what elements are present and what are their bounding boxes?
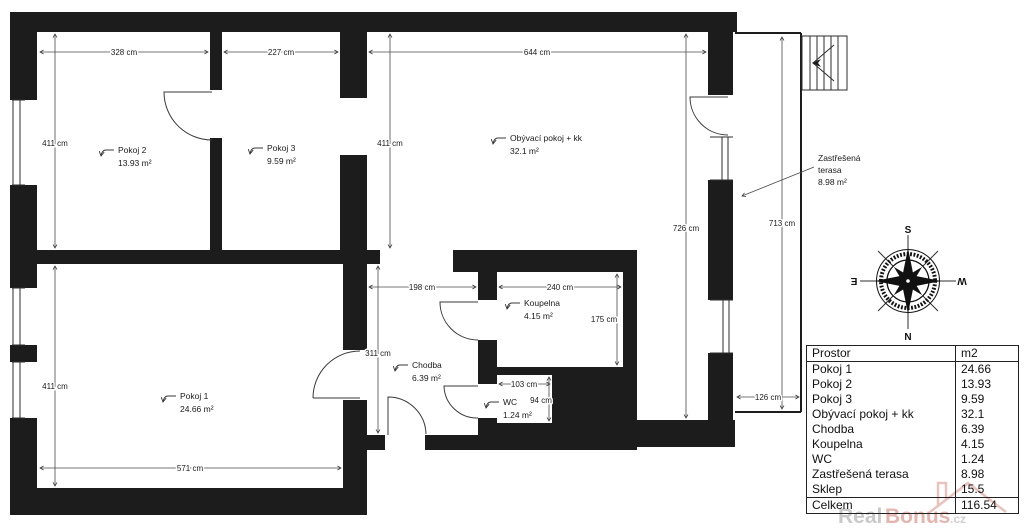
room-label-chodba: Chodba 6.39 m² xyxy=(395,360,442,383)
room-label-wc-text: 1.24 m² xyxy=(503,410,532,420)
room-label-koupelna: Koupelna 4.15 m² xyxy=(507,298,560,321)
window-left-pokoj1-b xyxy=(12,362,25,418)
walls-rect xyxy=(343,264,367,350)
walls-rect xyxy=(708,32,733,95)
walls-rect xyxy=(478,418,497,435)
window-living-terrace-b xyxy=(710,300,733,353)
compass-rose-icon: S N E W xyxy=(850,225,966,343)
dim-pokoj2-width: 328 cm xyxy=(40,48,208,57)
room-label-koupelna-path xyxy=(507,303,520,309)
table-row-td: Zastřešená terasa xyxy=(807,467,956,482)
door-pokoj2-path xyxy=(164,92,212,140)
door-living-terrace-path xyxy=(690,97,728,135)
dim-koupelna-height-text: 175 cm xyxy=(591,315,618,324)
dim-mid-height: 411 cm xyxy=(377,34,403,248)
area-table-header: Prostor m2 xyxy=(807,346,1019,362)
window-living-terrace xyxy=(710,137,733,180)
table-row-td: 32.1 xyxy=(956,407,1019,422)
walls-rect xyxy=(210,32,222,90)
table-total-label: Celkem xyxy=(807,498,956,514)
dim-mid-height-text: 411 cm xyxy=(377,139,403,148)
room-label-terasa-line xyxy=(742,167,814,196)
door-pokoj2 xyxy=(164,92,212,140)
room-label-pokoj2-text: Pokoj 2 xyxy=(118,145,147,155)
room-label-pokoj2: Pokoj 2 13.93 m² xyxy=(101,145,152,168)
dim-pokoj2-height: 411 cm xyxy=(42,34,68,248)
room-label-wc: WC 1.24 m² xyxy=(486,397,532,420)
dim-pokoj1-height-text: 411 cm xyxy=(42,382,68,391)
dim-pokoj1-width: 571 cm xyxy=(40,464,341,473)
door-entry-path xyxy=(388,397,426,435)
table-row: Pokoj 124.66 xyxy=(807,362,1019,378)
dim-living-width: 644 cm xyxy=(369,48,706,57)
dim-chodba-width-text: 198 cm xyxy=(409,283,436,292)
dim-pokoj1-width-text: 571 cm xyxy=(177,464,204,473)
walls-rect xyxy=(478,340,497,384)
dim-koupelna-height: 175 cm xyxy=(591,274,618,365)
table-row-td: 15.5 xyxy=(956,482,1019,498)
room-label-pokoj1-text: 24.66 m² xyxy=(180,404,214,414)
table-row-td: 1.24 xyxy=(956,452,1019,467)
dim-pokoj3-width: 227 cm xyxy=(224,48,338,57)
door-pokoj1 xyxy=(313,351,360,398)
dim-chodba-height: 311 cm xyxy=(365,266,391,433)
table-row-td: Pokoj 2 xyxy=(807,377,956,392)
table-row: Koupelna4.15 xyxy=(807,437,1019,452)
walls-rect xyxy=(478,272,497,300)
walls-rect xyxy=(10,250,380,264)
compass-left-label: E xyxy=(850,275,857,286)
table-total-row: Celkem 116.54 xyxy=(807,498,1019,514)
table-row: Chodba6.39 xyxy=(807,422,1019,437)
walls-rect xyxy=(10,185,37,288)
dim-pokoj2-width-text: 328 cm xyxy=(111,48,138,57)
door-wc-path xyxy=(444,386,478,418)
dim-living-height: 726 cm xyxy=(673,34,700,418)
dim-living-width-text: 644 cm xyxy=(524,48,551,57)
dim-living-height-text: 726 cm xyxy=(673,224,700,233)
table-row-td: 6.39 xyxy=(956,422,1019,437)
walls xyxy=(10,12,737,515)
room-label-pokoj3-text: 9.59 m² xyxy=(267,156,296,166)
walls-rect xyxy=(10,488,367,515)
area-table-table: Prostor m2 Pokoj 124.66 Pokoj 213.93 Pok… xyxy=(806,345,1019,514)
room-label-living: Obývací pokoj + kk 32.1 m² xyxy=(493,133,583,156)
table-row-td: Obývací pokoj + kk xyxy=(807,407,956,422)
table-total-value: 116.54 xyxy=(956,498,1019,514)
area-table-header-name: Prostor xyxy=(807,346,956,362)
table-row-td: Pokoj 1 xyxy=(807,362,956,378)
dim-pokoj3-width-text: 227 cm xyxy=(268,48,295,57)
room-label-pokoj2-text: 13.93 m² xyxy=(118,158,152,168)
room-label-chodba-text: Chodba xyxy=(412,360,442,370)
table-row: WC1.24 xyxy=(807,452,1019,467)
door-koupelna-path xyxy=(440,302,478,340)
room-label-terasa-text: 8.98 m² xyxy=(818,177,847,187)
door-living-terrace xyxy=(690,97,728,135)
stairs xyxy=(802,36,847,90)
table-row-td: 13.93 xyxy=(956,377,1019,392)
table-row: Zastřešená terasa8.98 xyxy=(807,467,1019,482)
area-table-header-unit: m2 xyxy=(956,346,1019,362)
dim-terasa-width-text: 126 cm xyxy=(755,393,782,402)
room-label-koupelna-text: Koupelna xyxy=(524,298,560,308)
table-row-td: Sklep xyxy=(807,482,956,498)
dim-terasa-height-text: 713 cm xyxy=(769,219,796,228)
compass-bottom-label: N xyxy=(904,332,911,343)
dim-wc-width: 103 cm xyxy=(499,380,550,389)
table-row: Pokoj 39.59 xyxy=(807,392,1019,407)
table-row-td: WC xyxy=(807,452,956,467)
dim-terasa-width: 126 cm xyxy=(737,393,799,402)
dim-wc-height-text: 94 cm xyxy=(530,396,552,405)
table-row-td: 4.15 xyxy=(956,437,1019,452)
room-label-living-path xyxy=(493,138,506,144)
room-label-pokoj3-text: Pokoj 3 xyxy=(267,143,296,153)
room-label-chodba-path xyxy=(395,365,408,371)
room-label-wc-text: WC xyxy=(503,397,517,407)
walls-rect xyxy=(367,435,385,450)
walls-rect xyxy=(343,400,367,515)
dim-chodba-width: 198 cm xyxy=(369,283,476,292)
door-entry xyxy=(388,397,426,435)
dim-pokoj1-height: 411 cm xyxy=(42,266,68,486)
watermark-cz: .cz xyxy=(950,512,966,526)
walls-rect xyxy=(453,250,637,272)
walls-rect xyxy=(10,12,37,100)
table-row-td: Chodba xyxy=(807,422,956,437)
walls-rect xyxy=(708,353,733,447)
window-left-pokoj2 xyxy=(12,100,25,185)
door-koupelna xyxy=(440,302,478,340)
compass-right-label: W xyxy=(957,275,967,286)
table-row-td: Pokoj 3 xyxy=(807,392,956,407)
walls-rect xyxy=(708,180,733,300)
walls-rect xyxy=(210,138,222,250)
room-label-terasa-text: terasa xyxy=(818,165,842,175)
table-row: Pokoj 213.93 xyxy=(807,377,1019,392)
window-left-pokoj1-a xyxy=(12,288,25,345)
door-wc xyxy=(444,386,478,418)
room-label-living-text: 32.1 m² xyxy=(510,146,539,156)
dim-koupelna-width: 240 cm xyxy=(499,283,621,292)
dim-wc-width-text: 103 cm xyxy=(511,380,538,389)
room-label-koupelna-text: 4.15 m² xyxy=(524,311,553,321)
room-label-terasa-text: Zastřešená xyxy=(818,153,861,163)
walls-rect xyxy=(10,12,737,32)
room-label-pokoj3: Pokoj 3 9.59 m² xyxy=(250,143,296,166)
dim-chodba-height-text: 311 cm xyxy=(365,349,391,358)
room-label-pokoj1-text: Pokoj 1 xyxy=(180,391,209,401)
walls-rect xyxy=(340,155,367,264)
table-row: Sklep15.5 xyxy=(807,482,1019,498)
room-label-pokoj3-path xyxy=(250,148,263,154)
room-label-living-text: Obývací pokoj + kk xyxy=(510,133,583,143)
table-row: Obývací pokoj + kk32.1 xyxy=(807,407,1019,422)
table-row-td: 24.66 xyxy=(956,362,1019,378)
room-label-chodba-text: 6.39 m² xyxy=(412,373,441,383)
walls-rect xyxy=(497,367,623,375)
room-label-pokoj1-path xyxy=(163,396,176,402)
table-row-td: Koupelna xyxy=(807,437,956,452)
room-label-wc-path xyxy=(486,402,499,408)
table-row-td: 9.59 xyxy=(956,392,1019,407)
compass-rose-icon-circle xyxy=(906,279,910,283)
door-pokoj1-path xyxy=(313,351,360,398)
dim-terasa-height: 713 cm xyxy=(769,37,796,409)
room-label-pokoj1: Pokoj 1 24.66 m² xyxy=(163,391,214,414)
room-label-pokoj2-path xyxy=(101,150,114,156)
table-row-td: 8.98 xyxy=(956,467,1019,482)
area-table: Prostor m2 Pokoj 124.66 Pokoj 213.93 Pok… xyxy=(806,345,1019,514)
compass-top-label: S xyxy=(905,225,912,236)
area-table-table-tbody: Prostor m2 Pokoj 124.66 Pokoj 213.93 Pok… xyxy=(807,346,1019,514)
dim-koupelna-width-text: 240 cm xyxy=(547,283,574,292)
walls-rect xyxy=(425,435,637,450)
dim-pokoj2-height-text: 411 cm xyxy=(42,139,68,148)
walls-rect xyxy=(340,32,367,98)
walls-rect xyxy=(10,345,37,362)
